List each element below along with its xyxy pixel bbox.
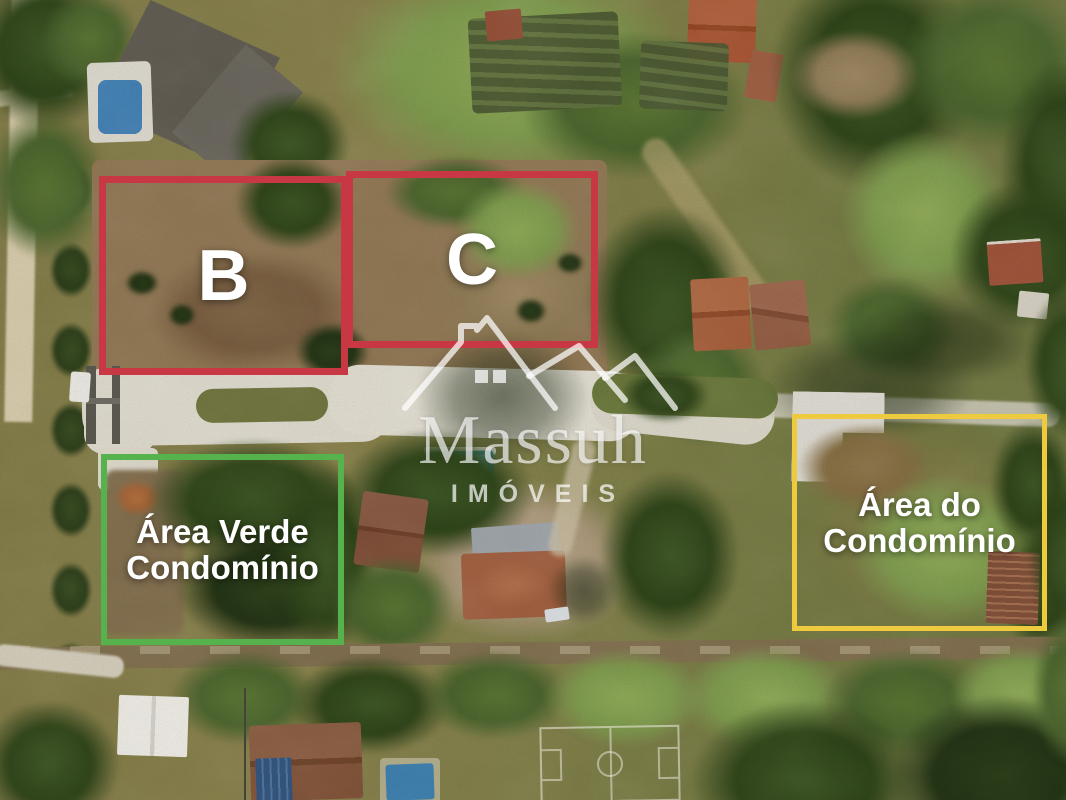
field-center-circle — [597, 751, 623, 777]
solar-panels — [255, 757, 293, 800]
gate-bar — [86, 398, 120, 404]
swimming-pool — [98, 80, 142, 134]
condo-area-label: Área do Condomínio — [823, 487, 1015, 558]
green-area-label-line1: Área Verde — [136, 514, 308, 549]
tree-cluster — [0, 700, 120, 800]
condo-area-label-line2: Condomínio — [823, 523, 1015, 558]
green-area-label: Área Verde Condomínio — [126, 514, 318, 585]
tree-cluster — [600, 470, 740, 640]
condo-area-outline: Área do Condomínio — [792, 414, 1047, 631]
lot-b-label: B — [198, 240, 250, 312]
vehicle — [69, 371, 91, 402]
aerial-photo: B C Área Verde Condomínio Área do Condom… — [0, 0, 1066, 800]
sports-field — [539, 725, 680, 800]
garden-beds — [639, 40, 729, 111]
lot-b-outline: B — [99, 176, 348, 375]
dirt-patch — [790, 30, 920, 120]
utility-pole — [244, 688, 246, 800]
barn-roof — [553, 53, 629, 120]
field-goal-box — [658, 747, 679, 779]
lot-c-outline: C — [346, 171, 598, 348]
swimming-pool — [385, 763, 434, 800]
shed-roof — [485, 8, 523, 41]
gate-post — [112, 366, 120, 444]
lot-c-label: C — [446, 224, 498, 296]
white-roof-house — [117, 695, 189, 757]
green-area-label-line2: Condomínio — [126, 550, 318, 585]
green-area-outline: Área Verde Condomínio — [101, 454, 344, 645]
house-roof-terracotta — [690, 277, 752, 352]
small-house-roof — [987, 238, 1044, 286]
tree-on-island — [620, 368, 710, 423]
condo-area-label-line1: Área do — [858, 487, 981, 522]
house-roof-terracotta — [749, 279, 812, 350]
road-median-island — [196, 387, 329, 423]
field-goal-box — [542, 749, 563, 781]
